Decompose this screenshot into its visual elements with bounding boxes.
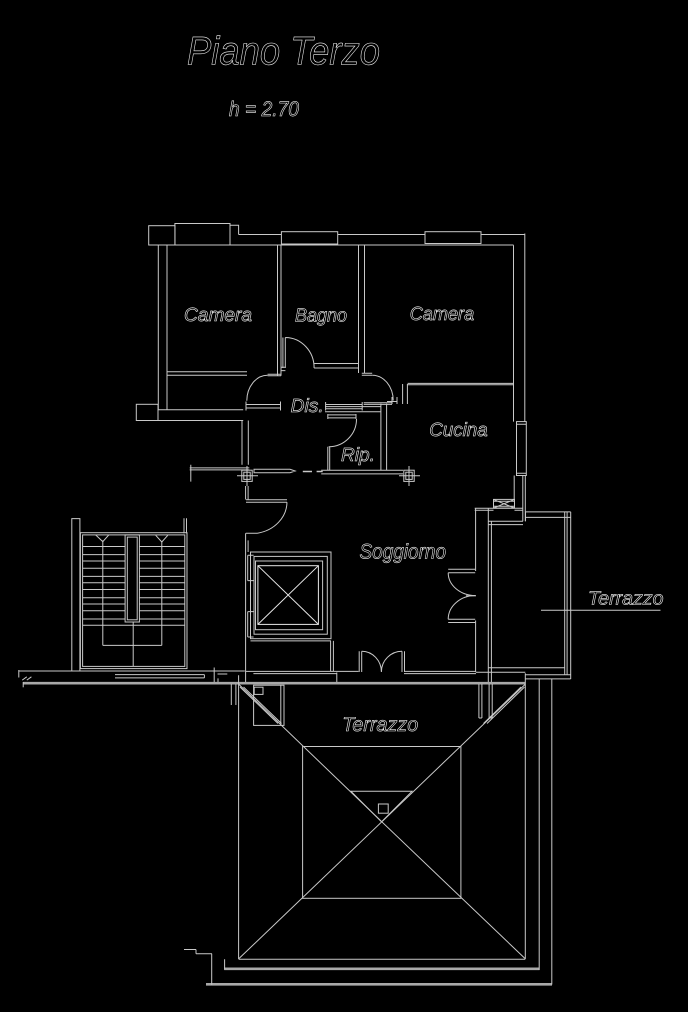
svg-text:Cucina: Cucina bbox=[429, 420, 488, 441]
svg-text:Camera: Camera bbox=[184, 305, 252, 326]
svg-text:h = 2.70: h = 2.70 bbox=[229, 98, 299, 121]
svg-text:Terrazzo: Terrazzo bbox=[342, 714, 418, 736]
svg-text:Rip.: Rip. bbox=[341, 445, 375, 466]
svg-text:Bagno: Bagno bbox=[295, 306, 347, 327]
svg-text:Camera: Camera bbox=[410, 304, 475, 325]
svg-text:Terrazzo: Terrazzo bbox=[588, 589, 664, 610]
svg-text:Dis.: Dis. bbox=[291, 396, 324, 417]
svg-text:Piano Terzo: Piano Terzo bbox=[187, 30, 380, 74]
svg-text:Soggiorno: Soggiorno bbox=[360, 541, 447, 564]
